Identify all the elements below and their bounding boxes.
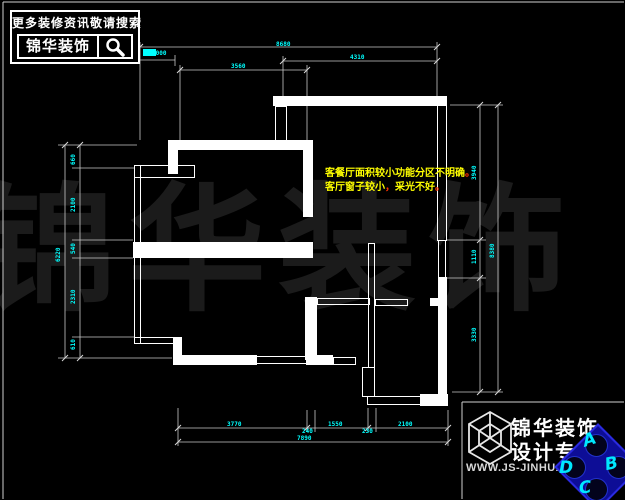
dim-left-seg1: 660 — [71, 154, 77, 165]
search-tagline: 更多装修资讯敬请搜索 — [12, 14, 138, 31]
wall-bedroom-top — [168, 140, 313, 150]
dim-top-right: 4310 — [350, 55, 364, 61]
wall-cross-vertical — [368, 243, 375, 368]
wall-bath-partition — [375, 299, 408, 306]
wall-bottom-small — [333, 357, 356, 365]
wall-bottom-left — [173, 355, 257, 365]
wall-top-right — [273, 96, 447, 106]
dim-right-total: 8380 — [490, 244, 496, 258]
window-top-center — [275, 106, 287, 142]
wall-kitchen-partition — [317, 298, 370, 305]
window-right — [438, 240, 446, 278]
dim-left-seg3: 540 — [71, 243, 77, 254]
dim-bottom-seg4: 230 — [362, 429, 373, 435]
wall-bath-stub — [430, 298, 442, 306]
dim-left-seg2: 2100 — [71, 198, 77, 212]
window-balcony-bottom — [367, 396, 423, 405]
dim-left-seg5: 610 — [71, 339, 77, 350]
dim-bottom-seg1: 3770 — [227, 422, 241, 428]
search-promo-box[interactable]: 更多装修资讯敬请搜索 锦华装饰 — [10, 10, 140, 64]
dim-right-seg2: 1110 — [472, 250, 478, 264]
window-balcony-left — [362, 367, 375, 397]
search-brand-label: 锦华装饰 — [19, 36, 97, 57]
dim-bottom-seg5: 2100 — [398, 422, 412, 428]
annotation-note: 客餐厅面积较小功能分区不明确。 客厅窗子较小，采光不好。 — [325, 167, 465, 195]
annotation-line1: 客餐厅面积较小功能分区不明确。 — [325, 167, 465, 181]
window-bay-left — [134, 165, 141, 344]
wall-bedroom-right — [303, 150, 313, 217]
dim-top-total: 8680 — [276, 42, 290, 48]
annotation-punct2: 。 — [435, 182, 445, 193]
dim-top-mid: 3560 — [231, 64, 245, 70]
wall-right-lower — [438, 277, 447, 406]
window-bay-bottom — [134, 337, 174, 344]
compass-letter-c[interactable]: C — [578, 477, 593, 498]
cube-logo-icon — [466, 410, 514, 466]
wall-bottom-mid — [306, 355, 333, 365]
wall-balcony-corner — [420, 394, 448, 406]
search-icon-cell[interactable] — [97, 36, 131, 57]
annotation-line2: 客厅窗子较小，采光不好。 — [325, 181, 465, 195]
compass-letter-d[interactable]: D — [559, 458, 573, 478]
dim-right-seg3: 3330 — [472, 328, 478, 342]
dim-bottom-seg3: 1550 — [328, 422, 342, 428]
window-bay-top — [134, 165, 195, 178]
floorplan-canvas: 锦华装饰 — [0, 0, 625, 500]
annotation-punct1: 。 — [465, 168, 475, 179]
dim-left-seg4: 2310 — [71, 290, 77, 304]
wall-interior-vertical — [305, 297, 317, 360]
window-bottom-center — [255, 356, 308, 364]
annotation-comma: ， — [385, 182, 395, 193]
dim-bottom-total: 7890 — [297, 436, 311, 442]
cyan-marker — [143, 49, 156, 56]
search-inner-box: 锦华装饰 — [17, 34, 133, 59]
compass-widget: A B C D — [545, 418, 625, 500]
dim-left-total: 6220 — [56, 248, 62, 262]
wall-middle-horizontal — [133, 242, 313, 258]
magnifier-icon — [105, 37, 125, 57]
